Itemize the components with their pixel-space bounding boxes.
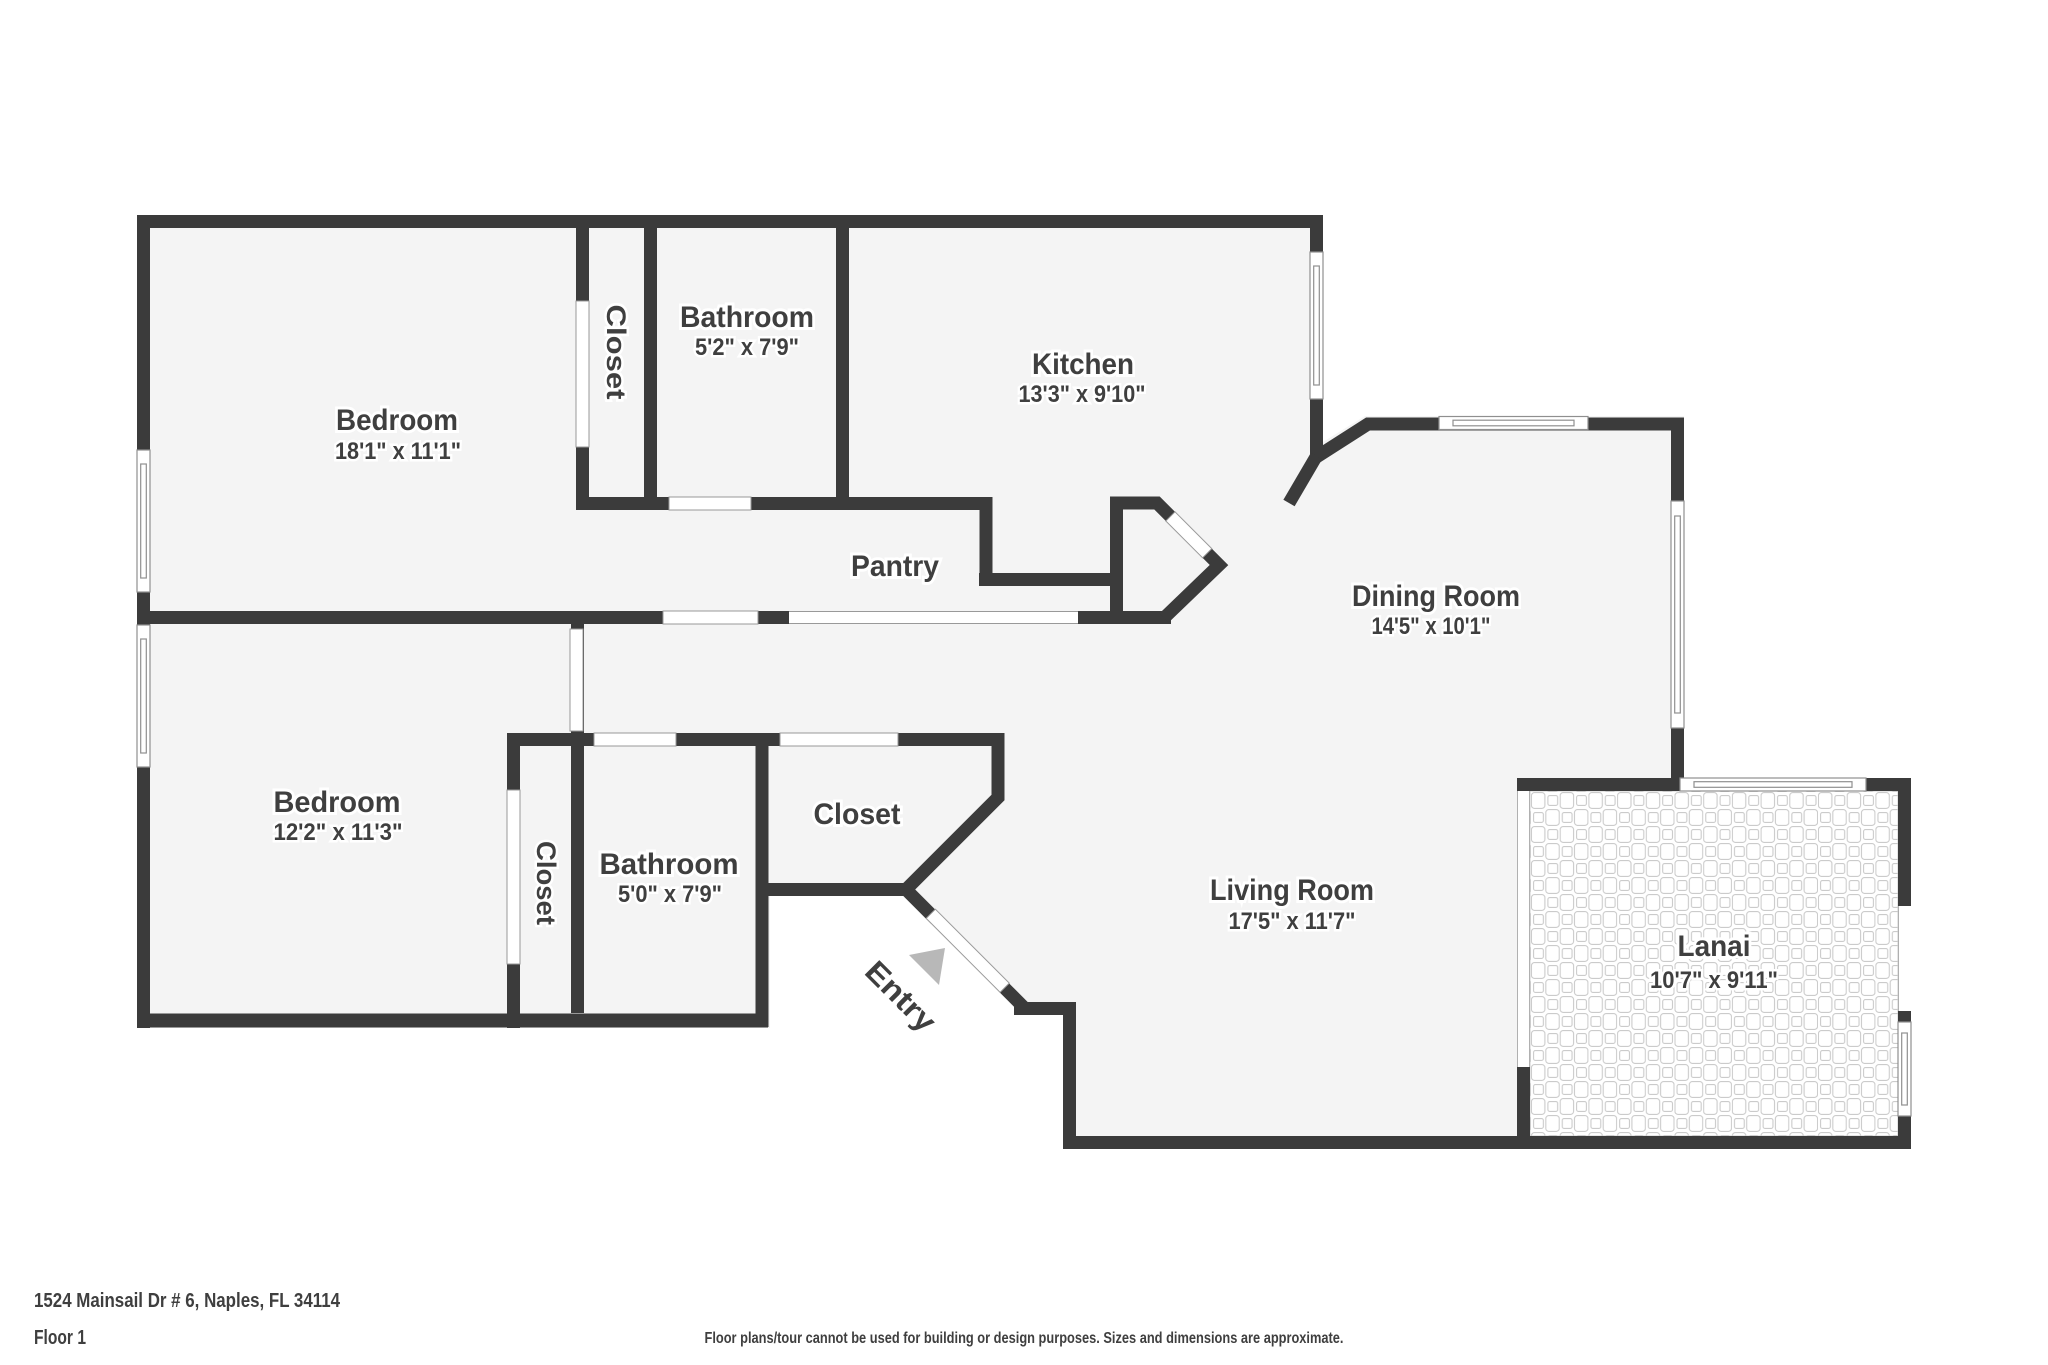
svg-text:Floor 1: Floor 1 [34, 1327, 86, 1349]
svg-text:1524 Mainsail Dr # 6, Naples,: 1524 Mainsail Dr # 6, Naples, FL 34114 [34, 1290, 341, 1312]
svg-text:Pantry: Pantry [851, 550, 939, 583]
svg-text:Closet: Closet [531, 841, 561, 925]
svg-text:Dining Room: Dining Room [1352, 580, 1520, 613]
svg-text:10'7" x 9'11": 10'7" x 9'11" [1650, 967, 1778, 994]
svg-text:14'5" x 10'1": 14'5" x 10'1" [1372, 613, 1491, 640]
svg-text:18'1" x 11'1": 18'1" x 11'1" [335, 438, 461, 465]
svg-text:Living Room: Living Room [1210, 874, 1374, 907]
svg-text:5'2" x 7'9": 5'2" x 7'9" [695, 334, 799, 361]
svg-text:Bathroom: Bathroom [680, 301, 814, 334]
svg-text:12'2" x 11'3": 12'2" x 11'3" [274, 819, 403, 846]
svg-text:17'5" x 11'7": 17'5" x 11'7" [1229, 908, 1356, 935]
svg-text:13'3" x 9'10": 13'3" x 9'10" [1019, 381, 1146, 408]
svg-text:Bedroom: Bedroom [336, 404, 458, 437]
svg-text:Bathroom: Bathroom [600, 848, 739, 881]
svg-text:5'0" x 7'9": 5'0" x 7'9" [618, 881, 722, 908]
svg-text:Bedroom: Bedroom [274, 786, 401, 819]
svg-text:Floor plans/tour cannot be use: Floor plans/tour cannot be used for buil… [705, 1330, 1344, 1347]
svg-text:Closet: Closet [814, 798, 901, 831]
svg-text:Closet: Closet [601, 305, 631, 400]
svg-text:Lanai: Lanai [1678, 930, 1751, 963]
svg-text:Kitchen: Kitchen [1032, 348, 1134, 381]
